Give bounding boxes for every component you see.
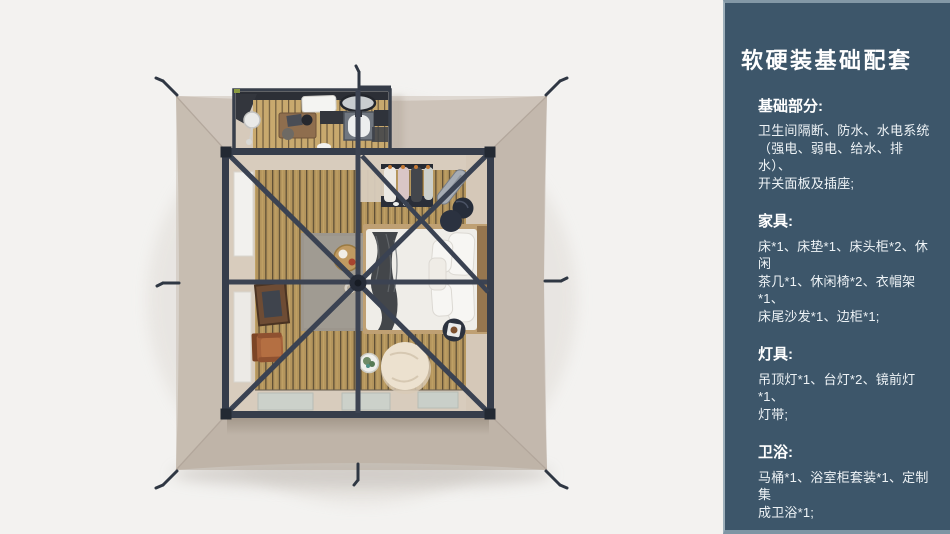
window-panel-lower: [234, 292, 251, 382]
section-body: 床*1、床垫*1、床头柜*2、休闲 茶几*1、休闲椅*2、衣帽架*1、 床尾沙发…: [758, 238, 936, 326]
stool: [282, 128, 294, 140]
skylight: [302, 95, 337, 112]
window-panel-upper: [234, 172, 253, 256]
lounge-chair: [251, 332, 283, 362]
bed: [363, 224, 492, 334]
side-tray-table: [443, 319, 466, 342]
garment: [411, 167, 422, 202]
section-body: 卫生间隔断、防水、水电系统 （强电、弱电、给水、排水）、 开关面板及插座;: [758, 122, 936, 192]
section-furniture: 家具: 床*1、床垫*1、床头柜*2、休闲 茶几*1、休闲椅*2、衣帽架*1、 …: [758, 212, 936, 325]
section-heading: 家具:: [758, 212, 936, 232]
section-heading: 灯具:: [758, 345, 936, 365]
spec-panel: 软硬装基础配套 基础部分: 卫生间隔断、防水、水电系统 （强电、弱电、给水、排水…: [723, 0, 950, 534]
tent-topview-svg: [0, 0, 723, 534]
section-bathroom: 卫浴: 马桶*1、浴室柜套装*1、定制集 成卫浴*1;: [758, 443, 936, 521]
counter: [320, 111, 347, 124]
section-heading: 基础部分:: [758, 97, 936, 117]
page: 软硬装基础配套 基础部分: 卫生间隔断、防水、水电系统 （强电、弱电、给水、排水…: [0, 0, 950, 534]
spec-sections: 基础部分: 卫生间隔断、防水、水电系统 （强电、弱电、给水、排水）、 开关面板及…: [758, 97, 936, 534]
garment: [424, 167, 433, 200]
wall-cabinet: [255, 283, 289, 326]
vanity-desk: [279, 113, 316, 140]
corner-marker: [234, 89, 240, 93]
section-basics: 基础部分: 卫生间隔断、防水、水电系统 （强电、弱电、给水、排水）、 开关面板及…: [758, 97, 936, 193]
section-body: 马桶*1、浴室柜套装*1、定制集 成卫浴*1;: [758, 469, 936, 522]
floorplan-render: [0, 0, 723, 534]
bathroom: [234, 88, 391, 151]
panel-title: 软硬装基础配套: [741, 47, 938, 75]
tea-table: [360, 354, 379, 373]
section-body: 吊顶灯*1、台灯*2、镜前灯*1、 灯带;: [758, 371, 936, 424]
section-heading: 卫浴:: [758, 443, 936, 463]
section-lighting: 灯具: 吊顶灯*1、台灯*2、镜前灯*1、 灯带;: [758, 345, 936, 423]
bath-cabinet: [374, 110, 389, 126]
wall-drop-shadow: [227, 418, 489, 435]
